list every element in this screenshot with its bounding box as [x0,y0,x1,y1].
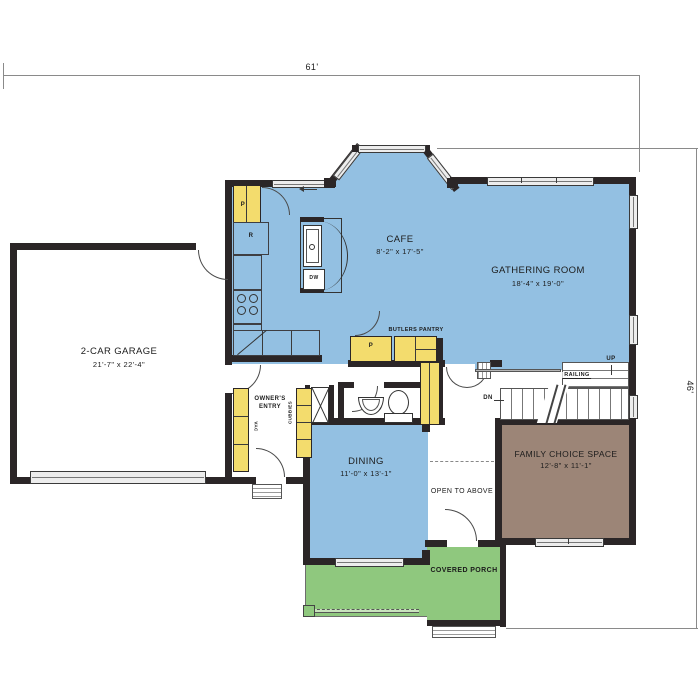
cubbies-cabinet [296,388,312,458]
linen-divider [429,363,430,424]
dimension-line-right [696,148,697,629]
cafe-name-label: CAFE [387,234,414,245]
dining-floor [308,424,428,562]
hall-south-wall-b [478,540,502,547]
butlers-pantry-p-label: P [369,343,373,349]
porch-post [303,605,315,617]
cubbies-label: CUBBIES [288,401,293,424]
family-name-label: FAMILY CHOICE SPACE [514,449,617,459]
slider-arrow-icon [299,186,304,192]
kitchen-pantry-label: P [241,202,245,208]
family-wall-left [495,418,502,545]
garage-wall-left [10,243,17,484]
owners-entry-label: OWNER'S ENTRY [248,396,292,411]
bay-corner-left [324,178,335,188]
porch-label: COVERED PORCH [430,567,497,574]
burner-1 [237,294,246,303]
dishwasher-label: DW [309,275,318,281]
dn-label: DN [483,395,492,401]
family-window [535,538,604,547]
cafe-wall-left [225,180,232,250]
dining-opening-jamb-bottom [422,550,430,558]
toilet-tank [384,413,413,423]
dimension-ext-top-right [639,75,640,172]
cafe-dims-label: 8'-2" x 17'-5" [376,247,424,256]
dining-dims-label: 11'-0" x 13'-1" [340,469,392,478]
counter-l [233,330,320,356]
burner-2 [249,294,258,303]
slider-arrow-shaft [303,189,317,190]
porch-door-arc [445,509,477,541]
butlers-pantry-label: BUTLERS PANTRY [388,327,443,333]
up-leader [611,365,612,375]
burner-4 [249,306,258,315]
powder-wall-top-b [384,382,420,388]
garage-wall-right-b [225,393,232,484]
porch-screen-line [307,609,419,613]
owners-exterior-door-arc [256,448,285,477]
up-label: UP [606,356,615,362]
right-window-2 [629,315,638,345]
butlers-counter-shelf [416,349,436,350]
porch-floor-right [427,547,504,624]
dimension-line-top [3,75,640,76]
family-dims-label: 12'-8" x 11'-1" [540,461,592,470]
right-window-3 [629,395,638,419]
garage-name-label: 2-CAR GARAGE [81,346,158,357]
owners-exterior-opening [256,477,286,484]
powder-wall-left [338,382,344,425]
dimension-ext-right-top [437,148,698,149]
cubbies-divider-2 [297,422,311,423]
open-above-label: OPEN TO ABOVE [431,488,493,495]
wall-right [629,177,636,545]
base-cabinet-1 [233,255,262,290]
bench-divider-2 [234,444,248,445]
gathering-top-window [487,177,594,186]
dining-window [335,558,404,567]
porch-wall-right [500,545,506,627]
gathering-dims-label: 18'-4" x 19'-0" [512,279,564,288]
toilet-bowl [388,390,409,415]
entry-steps [252,484,282,499]
bench-divider-1 [234,416,248,417]
garage-door [30,471,206,484]
owners-bench-cabinet [233,388,249,472]
dimension-ext-right-bottom [506,628,698,629]
vac-label: VAC [254,421,259,431]
island-faucet [309,244,315,250]
counter-divider-2 [291,331,292,355]
island-cap-top [300,217,324,222]
butlers-pantry-cabinet [350,336,392,362]
gathering-name-label: GATHERING ROOM [491,265,585,276]
window-mullion-1 [521,178,522,183]
dimension-label-top: 61' [306,62,319,72]
burner-3 [237,306,246,315]
floor-plan: 61' 46' [0,0,700,700]
cubbies-divider-3 [297,439,311,440]
double-door-left-arc [446,367,467,388]
right-window-1 [629,195,638,229]
porch-step [432,626,496,638]
cubbies-divider-1 [297,405,311,406]
kitchen-south-wall [225,355,322,362]
garage-dims-label: 21'-7" x 22'-4" [93,360,145,369]
dining-opening-jamb-top [422,424,430,432]
refrigerator-label: R [249,233,254,239]
family-floor [500,424,632,542]
hall-jamb [490,360,502,367]
bay-window-top [358,145,426,153]
open-above-dashed-line [430,461,494,462]
dimension-label-right: 46' [685,381,695,394]
dining-name-label: DINING [348,456,384,467]
family-window-mullion [568,539,569,544]
hall-linen-cabinet [420,362,440,425]
dimension-ext-top-left [3,63,4,89]
closet-wall-right [329,385,334,425]
railing-bar [475,369,561,372]
coat-closet [311,387,329,423]
window-mullion-2 [556,178,557,183]
hall-south-wall-a [425,540,447,547]
railing-label: RAILING [562,372,591,379]
dn-leader [494,400,504,401]
